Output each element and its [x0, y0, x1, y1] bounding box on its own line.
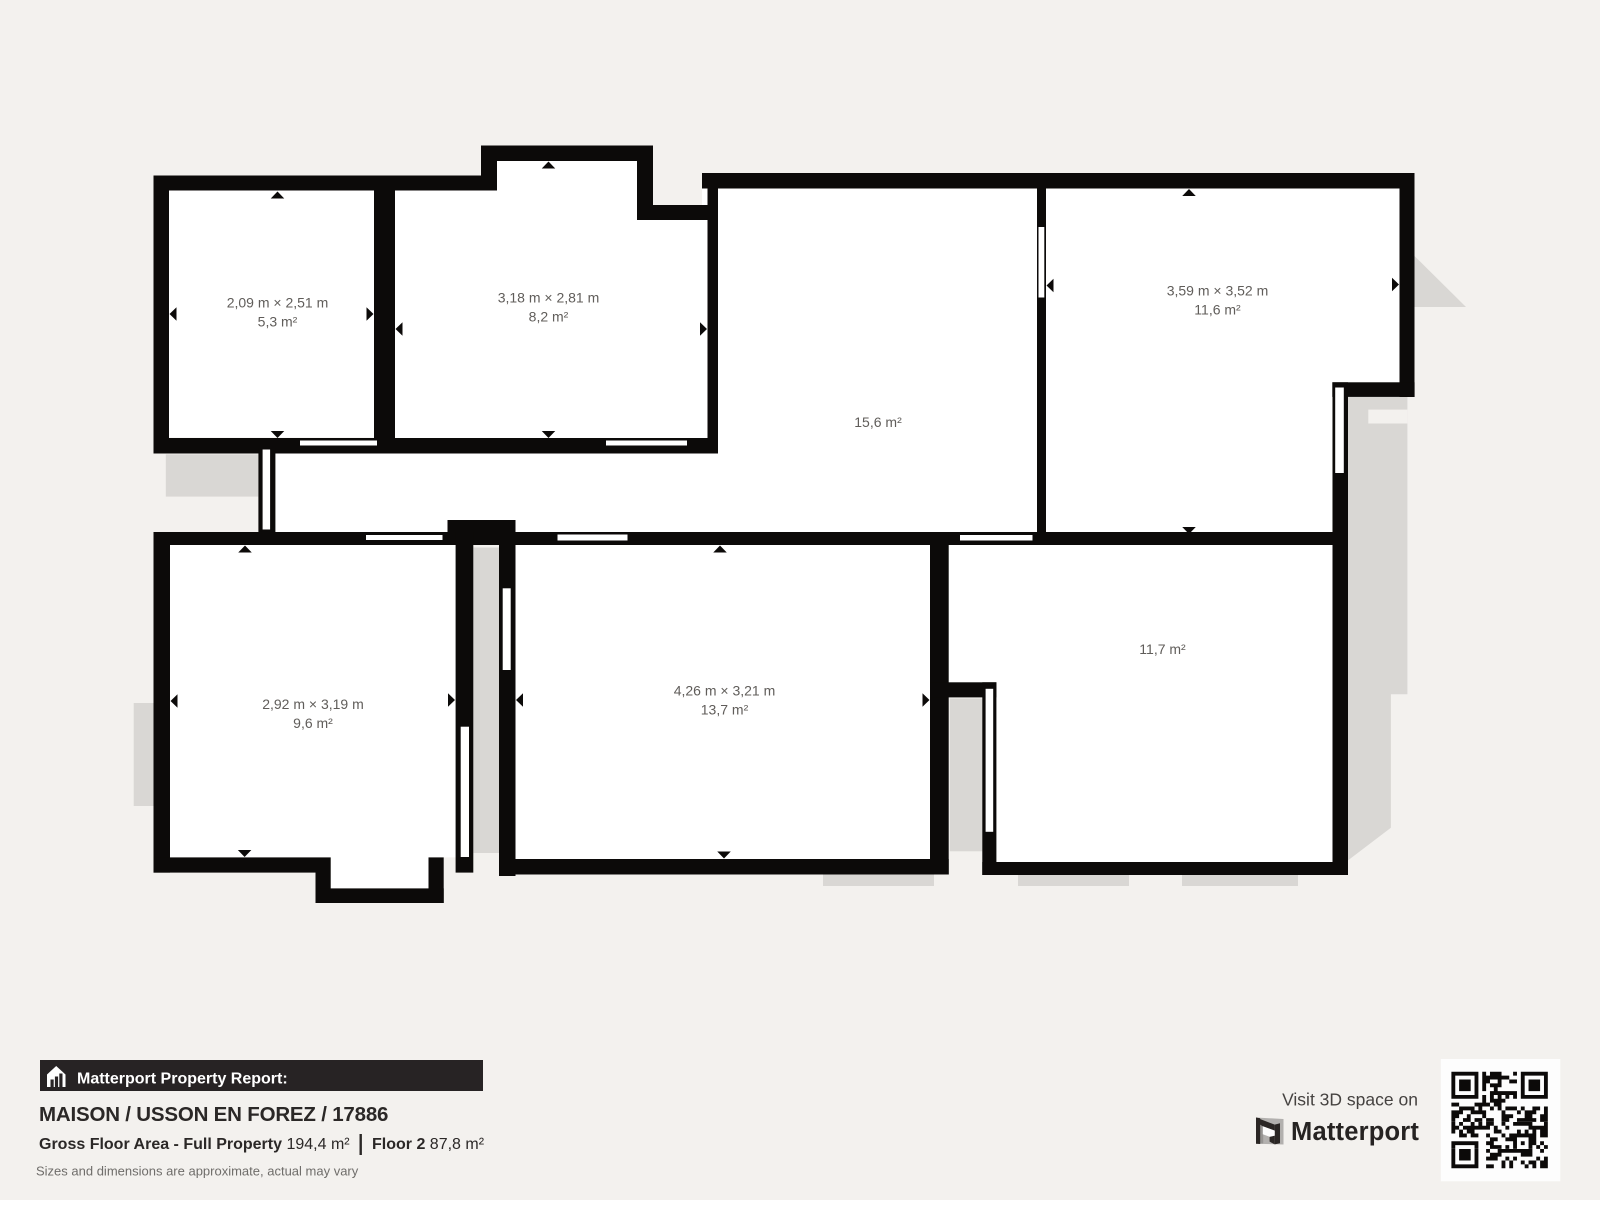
svg-text:4,26 m × 3,21 m: 4,26 m × 3,21 m [674, 683, 776, 699]
svg-text:2,92 m × 3,19 m: 2,92 m × 3,19 m [262, 696, 364, 712]
svg-text:3,18 m × 2,81 m: 3,18 m × 2,81 m [498, 290, 600, 306]
svg-text:Matterport: Matterport [1291, 1118, 1419, 1146]
svg-text:Sizes and dimensions are appro: Sizes and dimensions are approximate, ac… [36, 1164, 359, 1179]
svg-text:5,3 m²: 5,3 m² [258, 314, 298, 330]
svg-text:MAISON / USSON EN FOREZ / 1788: MAISON / USSON EN FOREZ / 17886 [39, 1103, 388, 1126]
svg-text:11,6 m²: 11,6 m² [1194, 302, 1241, 318]
svg-text:9,6 m²: 9,6 m² [293, 715, 333, 731]
svg-text:Floor 2 87,8 m²: Floor 2 87,8 m² [372, 1136, 485, 1153]
svg-text:15,6 m²: 15,6 m² [854, 414, 902, 430]
svg-text:13,7 m²: 13,7 m² [701, 702, 749, 718]
svg-text:Matterport Property Report:: Matterport Property Report: [77, 1071, 288, 1088]
svg-text:8,2 m²: 8,2 m² [529, 309, 569, 325]
svg-text:2,09 m × 2,51 m: 2,09 m × 2,51 m [227, 295, 329, 311]
svg-text:Gross Floor Area - Full Proper: Gross Floor Area - Full Property 194,4 m… [39, 1136, 350, 1153]
svg-text:11,7 m²: 11,7 m² [1139, 641, 1186, 657]
svg-text:Visit 3D space on: Visit 3D space on [1282, 1090, 1418, 1110]
svg-text:3,59 m × 3,52 m: 3,59 m × 3,52 m [1167, 283, 1269, 299]
